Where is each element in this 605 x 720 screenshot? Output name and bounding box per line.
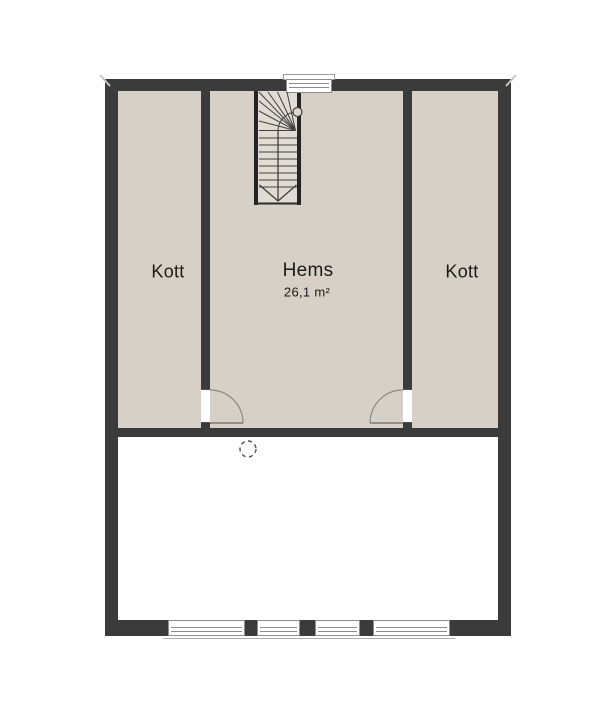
bottom-window-3-glass bbox=[318, 627, 357, 632]
wall-exterior-left bbox=[105, 79, 118, 636]
room-label-hems: Hems bbox=[283, 260, 334, 282]
wall-loft-front bbox=[105, 428, 511, 437]
bottom-window-1-glass bbox=[171, 627, 242, 632]
door-opening-kott-left bbox=[201, 389, 210, 423]
wall-kott-left bbox=[201, 91, 210, 389]
wall-exterior-bottom bbox=[105, 620, 511, 636]
wall-kott-right bbox=[403, 91, 412, 389]
top-window-icon bbox=[286, 79, 332, 93]
bottom-windows-sill-line bbox=[163, 638, 455, 639]
bottom-window-4-icon bbox=[373, 620, 450, 636]
floor-plan: Kott Hems 26,1 m² Kott bbox=[0, 0, 605, 720]
stair-stringer-left bbox=[254, 91, 258, 205]
stair-stringer-right bbox=[297, 91, 301, 205]
bottom-window-4-glass bbox=[376, 627, 447, 632]
wall-kott-right-stub bbox=[403, 423, 412, 428]
room-label-kott-left: Kott bbox=[151, 262, 184, 283]
bottom-window-1-icon bbox=[168, 620, 245, 636]
room-area-hems: 26,1 m² bbox=[284, 285, 330, 300]
room-label-kott-right: Kott bbox=[445, 262, 478, 283]
wall-exterior-right bbox=[498, 79, 511, 636]
bottom-window-2-glass bbox=[260, 627, 297, 632]
top-window-glass bbox=[289, 83, 329, 88]
staircase-well bbox=[258, 91, 297, 204]
bottom-window-2-icon bbox=[257, 620, 300, 636]
open-to-below-area bbox=[118, 437, 498, 620]
door-opening-kott-right bbox=[403, 389, 412, 423]
bottom-window-3-icon bbox=[315, 620, 360, 636]
wall-kott-left-stub bbox=[201, 423, 210, 428]
